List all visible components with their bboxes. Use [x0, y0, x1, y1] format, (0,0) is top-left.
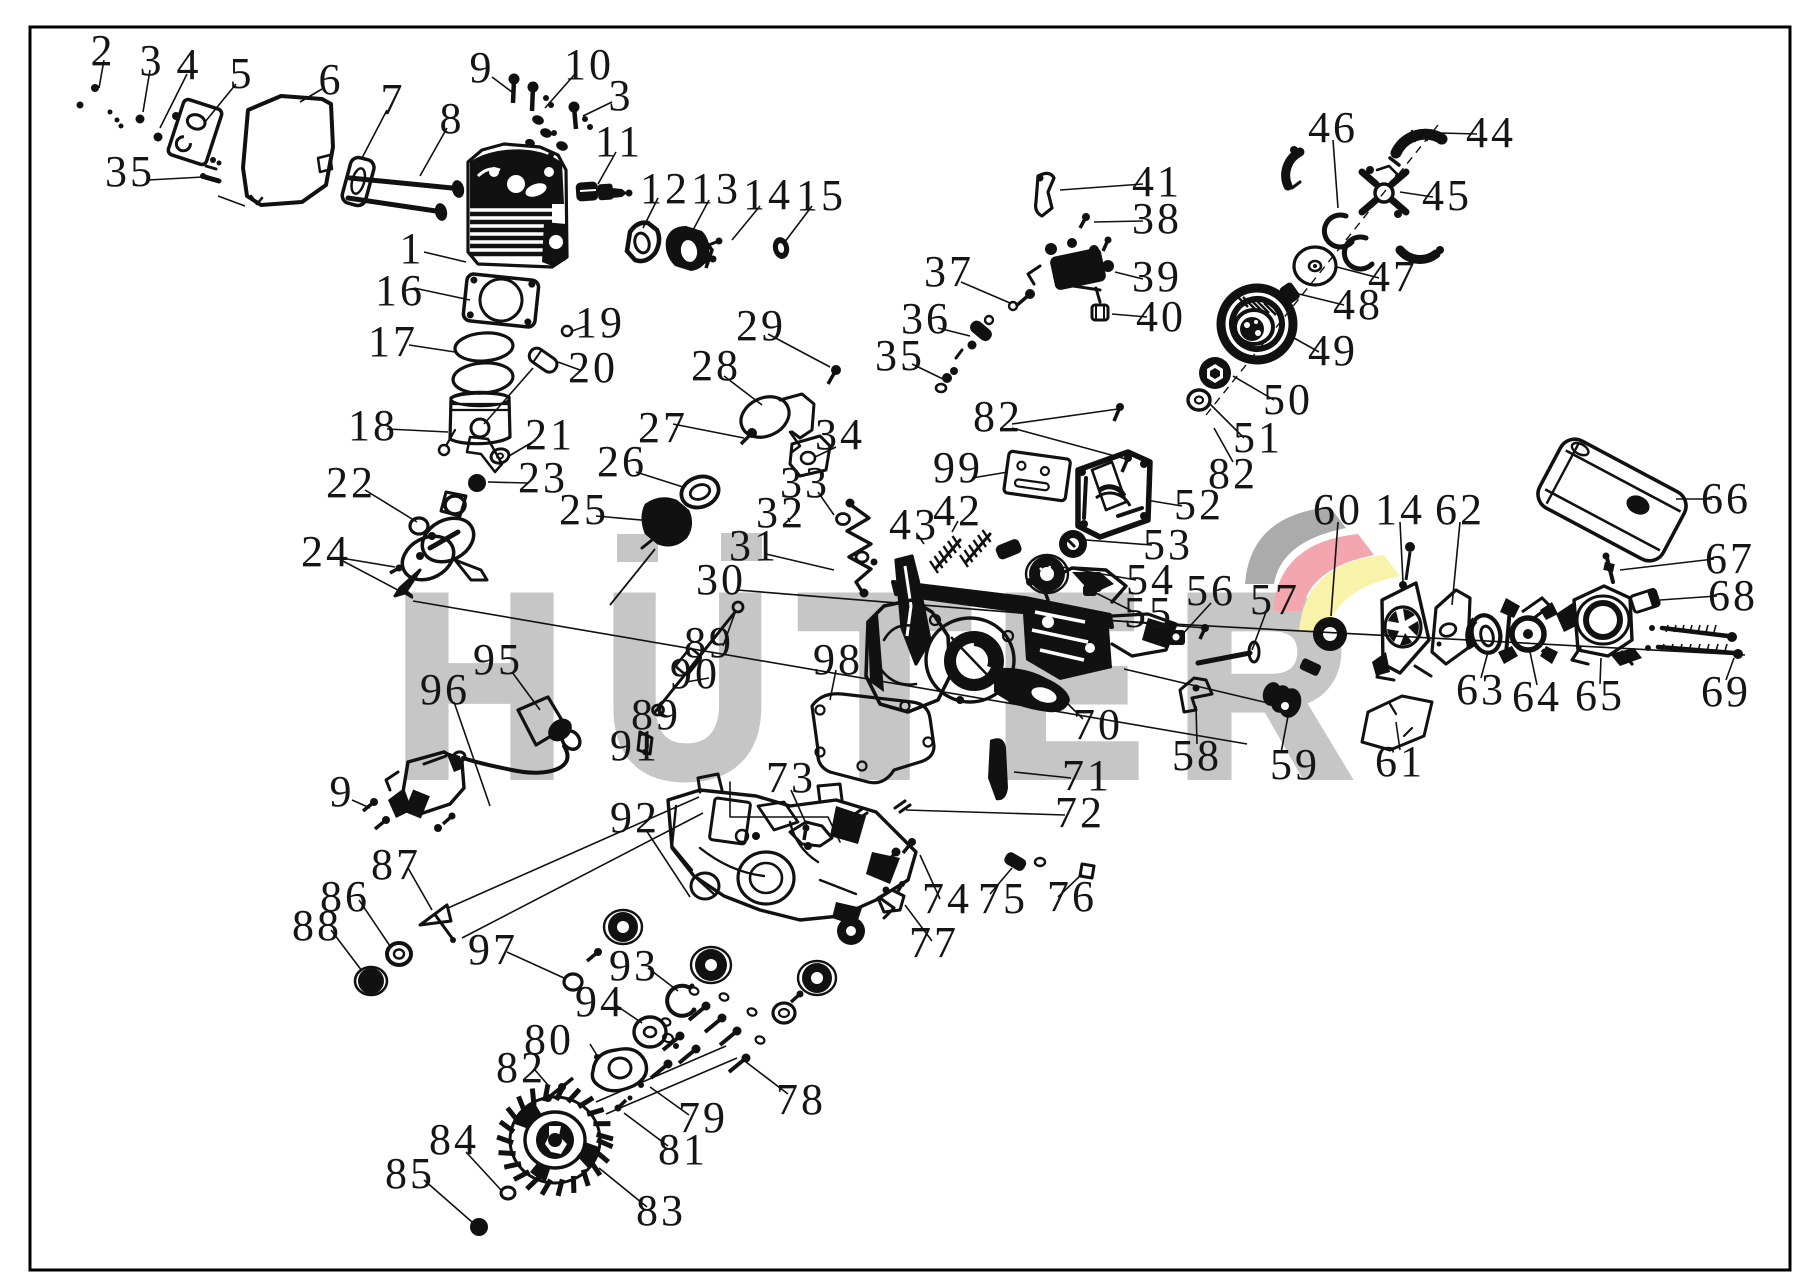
svg-text:77: 77	[909, 918, 959, 967]
svg-text:30: 30	[696, 555, 746, 604]
svg-text:44: 44	[1466, 108, 1516, 157]
svg-text:24: 24	[301, 527, 351, 576]
svg-text:19: 19	[575, 298, 625, 347]
svg-text:22: 22	[326, 458, 376, 507]
svg-text:34: 34	[815, 410, 865, 459]
svg-text:73: 73	[766, 753, 816, 802]
svg-text:15: 15	[796, 171, 846, 220]
svg-text:97: 97	[468, 925, 518, 974]
svg-text:3: 3	[140, 36, 165, 85]
svg-text:94: 94	[575, 977, 625, 1026]
svg-text:38: 38	[1132, 194, 1182, 243]
svg-text:82: 82	[1208, 449, 1258, 498]
svg-text:35: 35	[875, 331, 925, 380]
svg-text:55: 55	[1124, 588, 1174, 637]
svg-text:45: 45	[1422, 171, 1472, 220]
svg-text:78: 78	[776, 1075, 826, 1124]
svg-text:11: 11	[595, 117, 643, 166]
svg-text:69: 69	[1701, 667, 1751, 716]
svg-text:25: 25	[559, 485, 609, 534]
svg-text:14: 14	[743, 170, 793, 219]
svg-text:35: 35	[105, 147, 155, 196]
svg-text:4: 4	[177, 40, 202, 89]
svg-text:83: 83	[636, 1186, 686, 1235]
svg-text:3: 3	[609, 71, 634, 120]
svg-text:75: 75	[978, 874, 1028, 923]
svg-text:57: 57	[1250, 575, 1300, 624]
svg-text:74: 74	[922, 874, 972, 923]
svg-text:27: 27	[638, 403, 688, 452]
svg-text:29: 29	[736, 301, 786, 350]
svg-text:63: 63	[1456, 665, 1506, 714]
svg-text:87: 87	[371, 840, 421, 889]
svg-text:6: 6	[319, 55, 344, 104]
svg-text:81: 81	[658, 1125, 708, 1174]
svg-text:18: 18	[348, 401, 398, 450]
svg-text:82: 82	[496, 1043, 546, 1092]
svg-text:13: 13	[691, 164, 741, 213]
svg-text:9: 9	[330, 767, 355, 816]
svg-text:64: 64	[1512, 672, 1562, 721]
svg-text:9: 9	[470, 43, 495, 92]
svg-text:16: 16	[375, 266, 425, 315]
svg-text:10: 10	[564, 40, 614, 89]
svg-text:84: 84	[429, 1115, 479, 1164]
svg-text:72: 72	[1055, 788, 1105, 837]
svg-text:99: 99	[933, 443, 983, 492]
svg-text:56: 56	[1186, 566, 1236, 615]
svg-text:85: 85	[385, 1149, 435, 1198]
svg-text:20: 20	[568, 343, 618, 392]
svg-text:96: 96	[420, 665, 470, 714]
svg-text:5: 5	[230, 49, 255, 98]
svg-text:82: 82	[973, 392, 1023, 441]
svg-text:21: 21	[525, 410, 575, 459]
svg-text:59: 59	[1270, 740, 1320, 789]
svg-text:12: 12	[640, 164, 690, 213]
svg-text:70: 70	[1073, 700, 1123, 749]
svg-text:76: 76	[1047, 872, 1097, 921]
svg-text:42: 42	[933, 486, 983, 535]
svg-text:37: 37	[924, 247, 974, 296]
svg-text:17: 17	[368, 317, 418, 366]
svg-text:88: 88	[292, 901, 342, 950]
svg-text:43: 43	[889, 500, 939, 549]
